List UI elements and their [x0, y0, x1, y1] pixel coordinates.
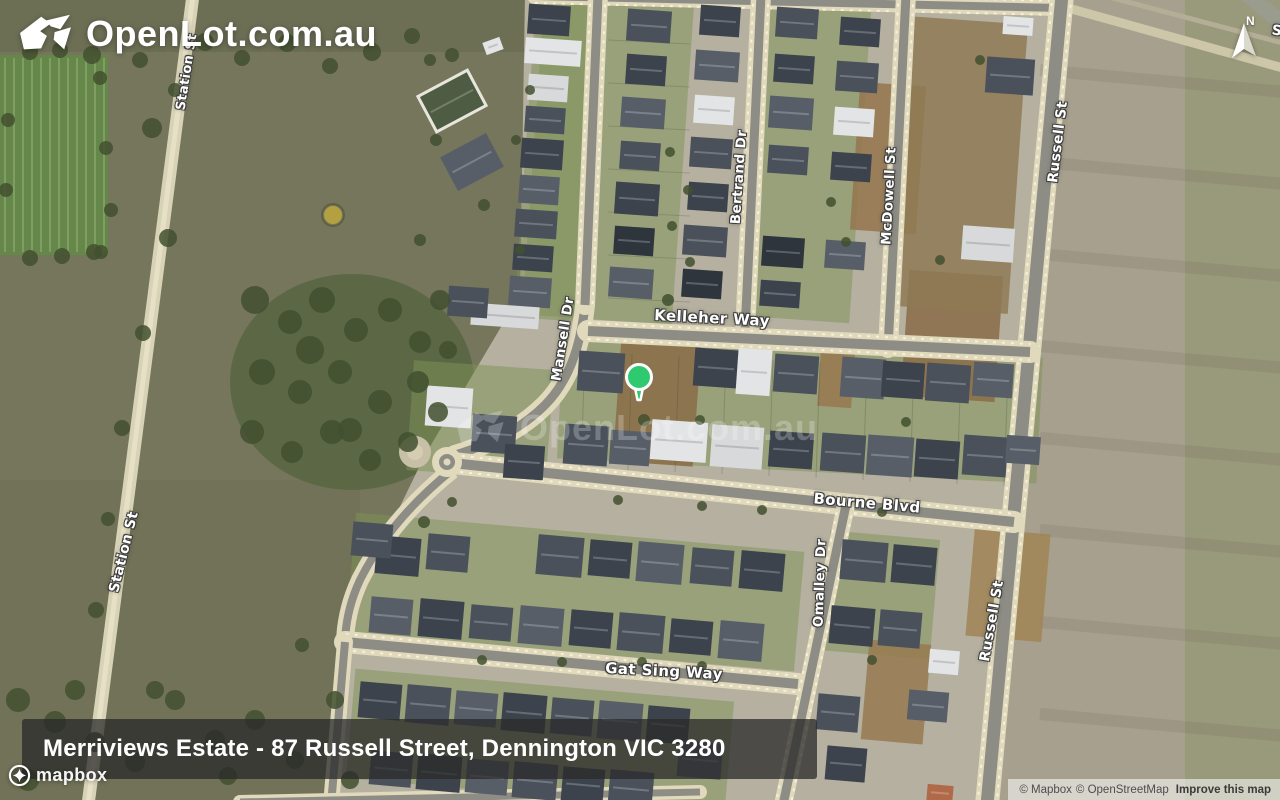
estate-title-bar: Merriviews Estate - 87 Russell Street, D…: [22, 719, 817, 779]
mapbox-icon: [8, 764, 31, 787]
openlot-logo[interactable]: OpenLot.com.au: [14, 10, 377, 58]
map-viewport: Station StStation StMansell DrBertrand D…: [0, 0, 1280, 800]
mapbox-logo-text: mapbox: [36, 765, 107, 786]
osm-attribution-link[interactable]: © OpenStreetMap: [1076, 784, 1169, 796]
openlot-logo-icon: [14, 10, 76, 58]
property-marker[interactable]: [622, 362, 656, 416]
mapbox-attribution-link[interactable]: © Mapbox: [1019, 784, 1072, 796]
estate-title-text: Merriviews Estate - 87 Russell Street, D…: [43, 735, 726, 763]
mapbox-logo[interactable]: mapbox: [8, 764, 107, 787]
openlot-logo-text: OpenLot.com.au: [86, 13, 377, 55]
improve-map-link[interactable]: Improve this map: [1176, 784, 1271, 796]
compass-north-label: N: [1246, 14, 1255, 28]
map-attribution: © Mapbox © OpenStreetMap Improve this ma…: [1008, 779, 1280, 800]
